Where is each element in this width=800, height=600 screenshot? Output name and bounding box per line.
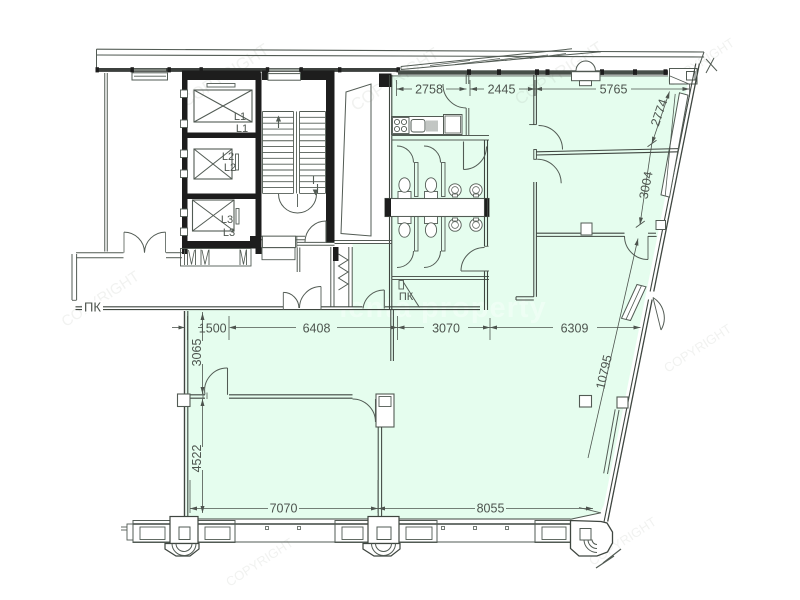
- svg-text:L2: L2: [224, 162, 236, 174]
- svg-text:5765: 5765: [600, 83, 628, 97]
- svg-text:1500: 1500: [199, 321, 227, 335]
- svg-text:8055: 8055: [477, 501, 505, 515]
- svg-text:3070: 3070: [432, 321, 460, 335]
- svg-text:7070: 7070: [270, 501, 298, 515]
- svg-text:6408: 6408: [303, 321, 331, 335]
- svg-text:L1: L1: [234, 111, 246, 123]
- svg-text:4522: 4522: [190, 445, 204, 473]
- svg-text:ПК: ПК: [399, 291, 414, 303]
- svg-text:3065: 3065: [190, 339, 204, 367]
- svg-text:2758: 2758: [415, 83, 443, 97]
- svg-text:L1: L1: [236, 123, 248, 135]
- svg-text:L3: L3: [221, 214, 233, 226]
- svg-text:2445: 2445: [488, 83, 516, 97]
- svg-text:ПК: ПК: [84, 300, 101, 315]
- svg-text:L3: L3: [223, 227, 235, 239]
- svg-text:6309: 6309: [561, 321, 589, 335]
